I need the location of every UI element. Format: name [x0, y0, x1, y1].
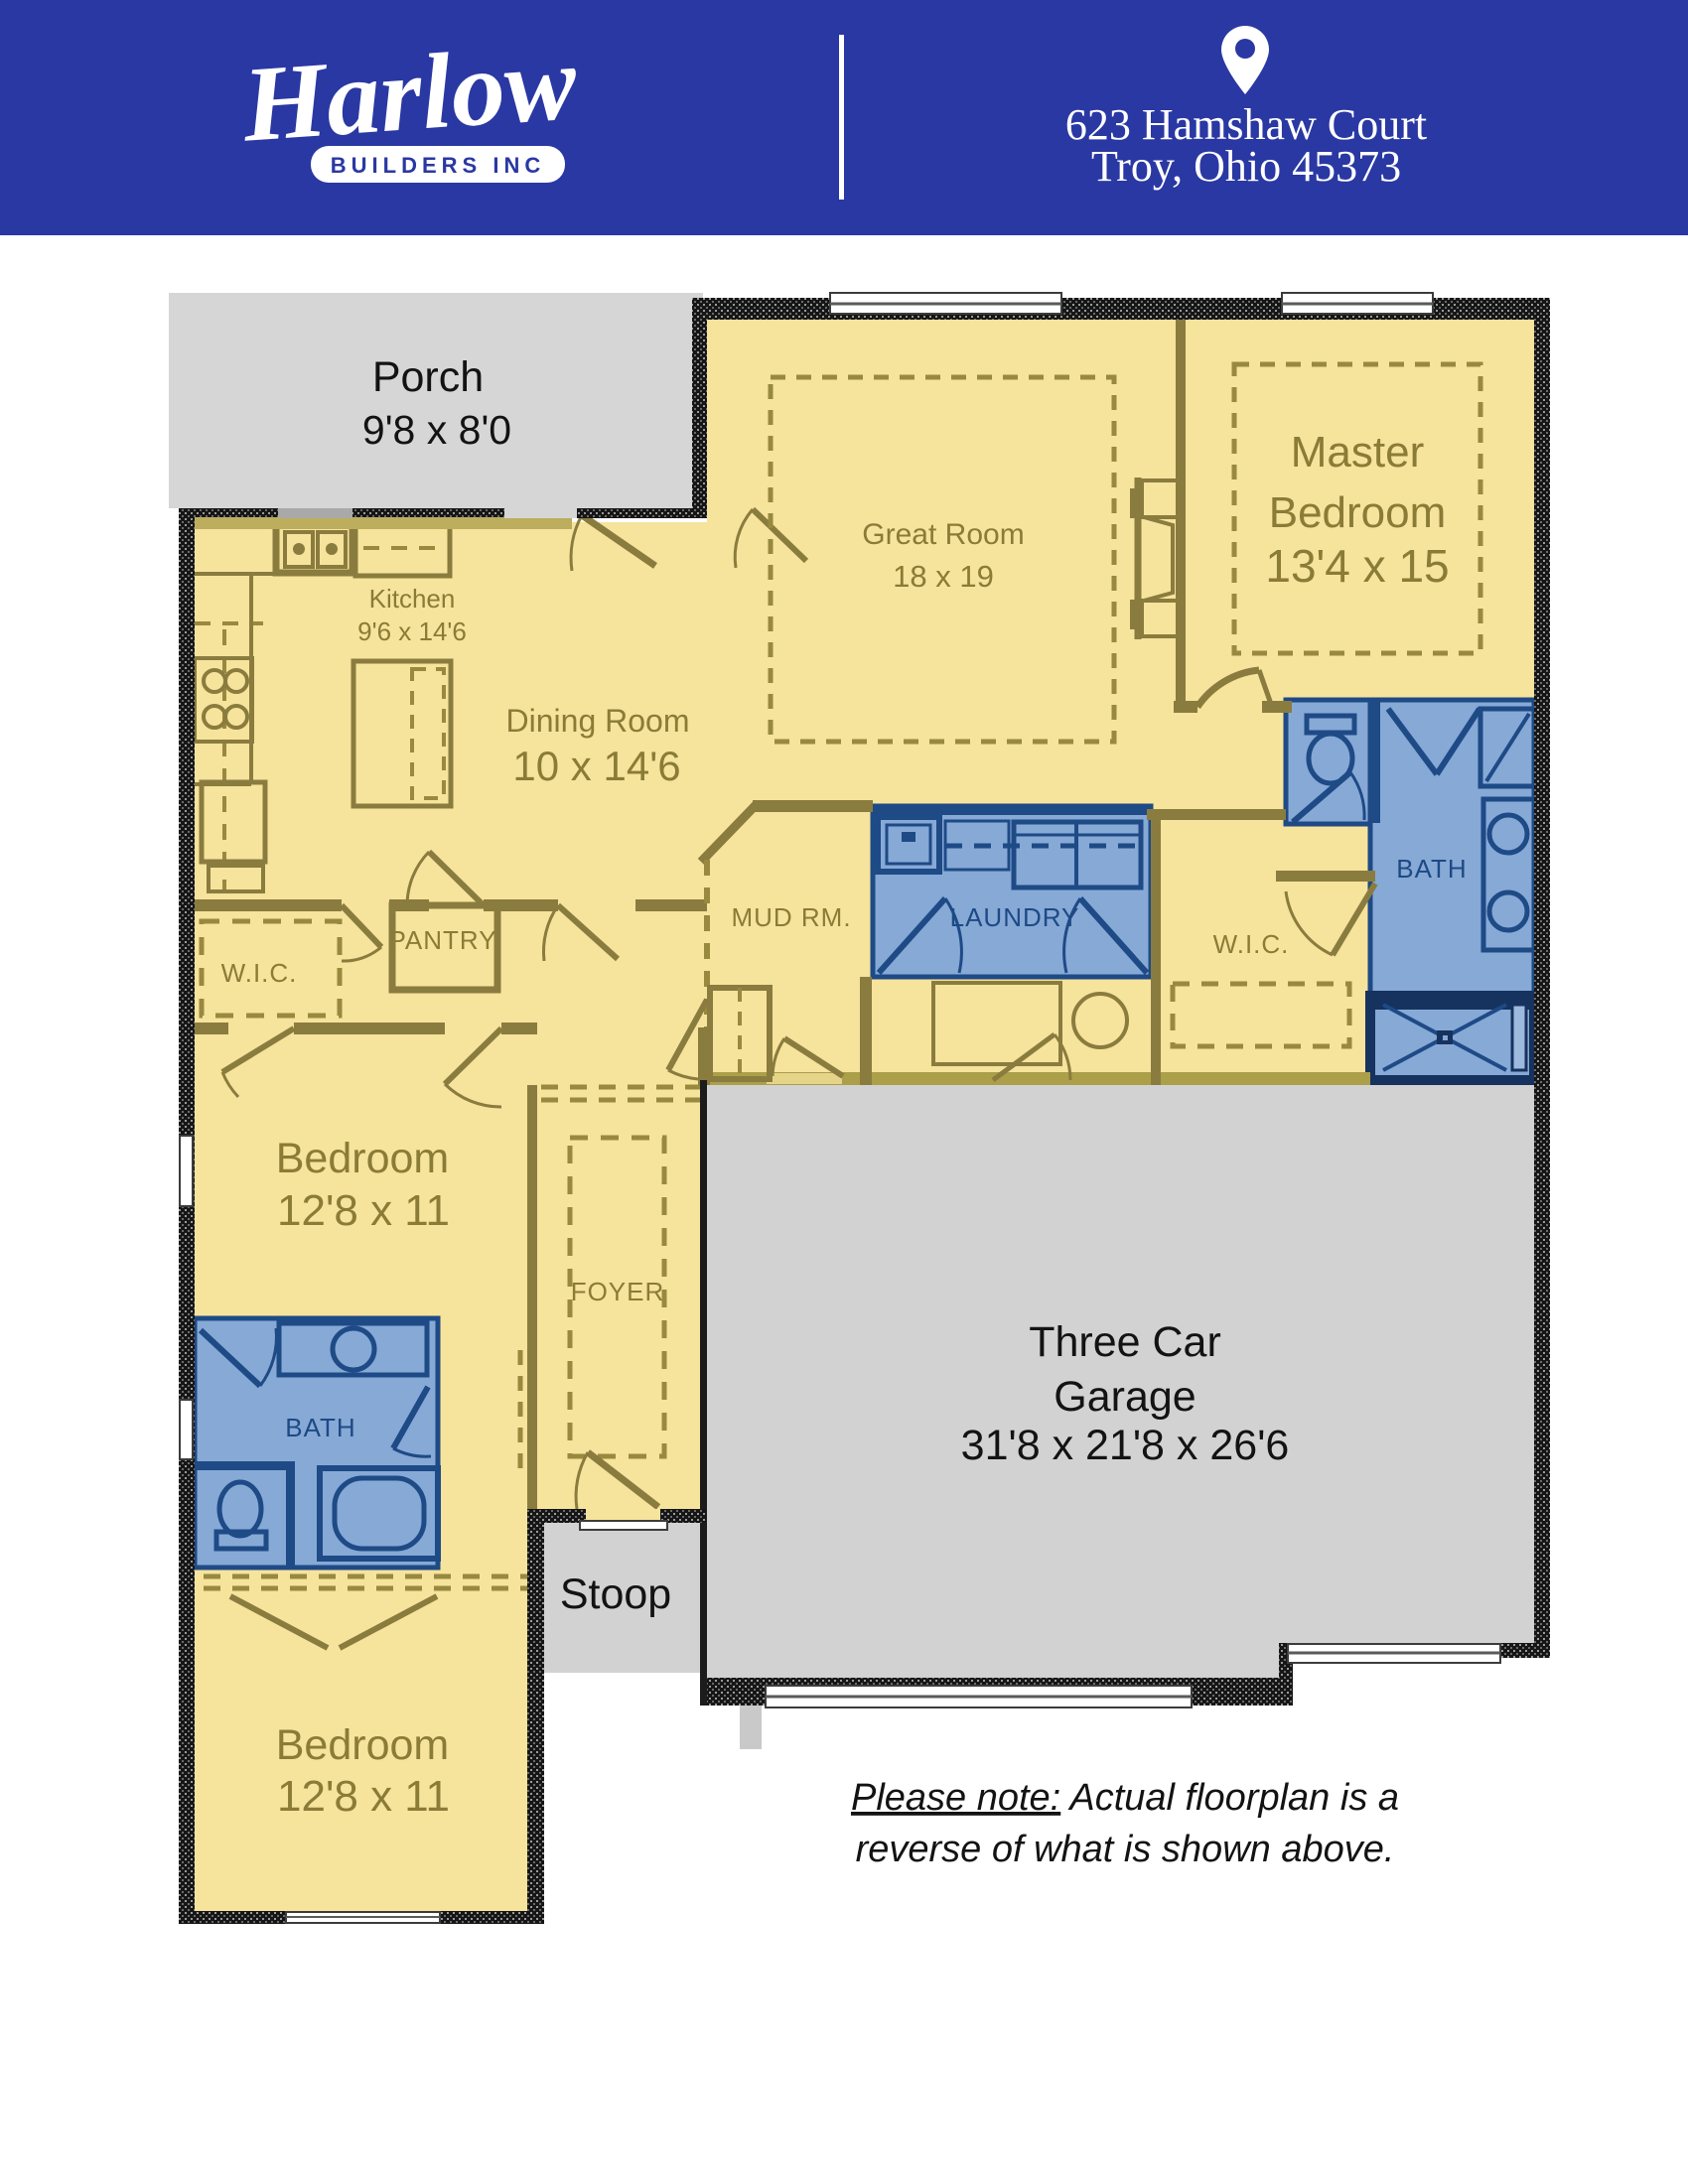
svg-text:Porch: Porch: [372, 353, 484, 401]
svg-text:MUD RM.: MUD RM.: [731, 902, 851, 932]
svg-text:BATH: BATH: [1396, 854, 1467, 884]
svg-text:9'6 x 14'6: 9'6 x 14'6: [357, 616, 467, 646]
svg-text:LAUNDRY: LAUNDRY: [950, 902, 1080, 932]
svg-text:FOYER: FOYER: [571, 1277, 665, 1306]
svg-text:Three Car: Three Car: [1029, 1318, 1221, 1366]
svg-text:Please note: Actual floorplan: Please note: Actual floorplan is a: [851, 1777, 1399, 1819]
svg-text:13'4 x 15: 13'4 x 15: [1265, 540, 1449, 592]
svg-text:18 x 19: 18 x 19: [893, 559, 994, 594]
svg-text:reverse of what is shown above: reverse of what is shown above.: [856, 1829, 1395, 1870]
svg-text:Bedroom: Bedroom: [276, 1721, 449, 1769]
svg-text:Garage: Garage: [1054, 1373, 1196, 1421]
svg-text:PANTRY: PANTRY: [388, 925, 496, 955]
svg-text:BUILDERS INC: BUILDERS INC: [331, 153, 545, 178]
svg-text:Great Room: Great Room: [862, 518, 1024, 551]
svg-text:12'8 x 11: 12'8 x 11: [277, 1186, 450, 1235]
svg-text:10 x 14'6: 10 x 14'6: [512, 743, 680, 789]
svg-text:Dining Room: Dining Room: [506, 703, 690, 739]
svg-text:Kitchen: Kitchen: [369, 584, 456, 614]
svg-text:Stoop: Stoop: [560, 1570, 671, 1618]
svg-text:Master: Master: [1291, 428, 1424, 477]
svg-text:W.I.C.: W.I.C.: [1213, 929, 1290, 959]
svg-text:Bedroom: Bedroom: [1269, 488, 1447, 537]
svg-text:Bedroom: Bedroom: [276, 1135, 449, 1182]
svg-text:Troy, Ohio 45373: Troy, Ohio 45373: [1091, 142, 1401, 191]
svg-text:BATH: BATH: [285, 1413, 355, 1442]
svg-text:12'8 x 11: 12'8 x 11: [277, 1772, 450, 1821]
svg-text:31'8 x 21'8 x 26'6: 31'8 x 21'8 x 26'6: [961, 1422, 1290, 1469]
svg-text:9'8 x 8'0: 9'8 x 8'0: [362, 407, 511, 453]
svg-text:Harlow: Harlow: [238, 23, 582, 164]
svg-text:W.I.C.: W.I.C.: [221, 958, 298, 988]
